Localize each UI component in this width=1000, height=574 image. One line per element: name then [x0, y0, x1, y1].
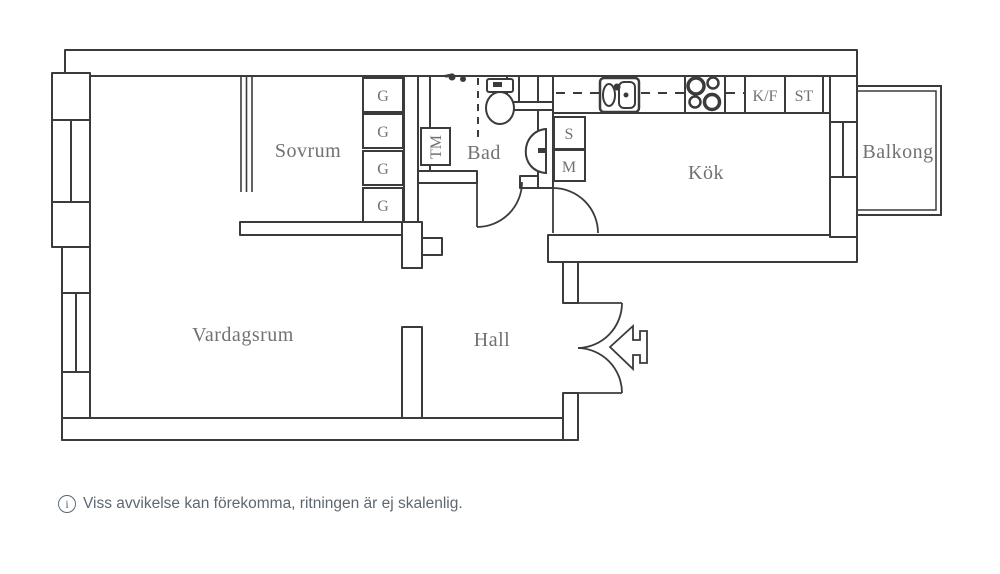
toilet-icon	[486, 79, 514, 124]
wall-hall-right-upper	[563, 262, 578, 303]
kitchen-sink-icon	[600, 78, 639, 112]
fridge-freezer-box: K/F	[745, 76, 785, 113]
wall-hall-right-lower	[563, 393, 578, 440]
cabinet-m-box: M	[554, 150, 585, 181]
wall-pier-nub	[422, 238, 442, 255]
wardrobe-box-2: G	[363, 114, 403, 148]
room-label-balkong: Balkong	[862, 141, 933, 163]
footer-disclaimer: i Viss avvikelse kan förekomma, ritninge…	[58, 495, 463, 513]
room-label-sovrum: Sovrum	[275, 140, 341, 162]
wall-pier-vertical	[402, 222, 422, 268]
info-icon: i	[58, 495, 76, 513]
room-label-vardagsrum: Vardagsrum	[192, 324, 294, 346]
wall-closet-bathroom	[404, 76, 418, 222]
stove-icon	[685, 76, 725, 113]
wall-bottom	[62, 418, 578, 440]
floor-plan-page: TM K/F ST S	[0, 0, 1000, 574]
door-kitchen	[553, 188, 598, 233]
fridge-freezer-label: K/F	[753, 88, 778, 105]
sliding-door-bedroom	[241, 76, 252, 192]
wall-top	[65, 50, 857, 76]
cabinet-s-box: S	[554, 117, 585, 149]
wardrobes: G G G G	[363, 78, 403, 222]
door-bathroom	[477, 182, 522, 227]
floor-plan-drawing: TM K/F ST S	[0, 0, 1000, 574]
wall-kitchen-bottom	[548, 235, 857, 262]
wall-hall-left	[402, 327, 422, 418]
room-label-bad: Bad	[467, 142, 501, 164]
wardrobe-box-1: G	[363, 78, 403, 112]
bathroom-sink-icon	[526, 129, 547, 173]
wardrobe-label: G	[377, 124, 389, 141]
washing-machine-label: TM	[428, 135, 445, 159]
cleaning-closet-box: ST	[785, 76, 823, 113]
wardrobe-label: G	[377, 88, 389, 105]
wardrobe-box-3: G	[363, 151, 403, 185]
cleaning-closet-label: ST	[795, 88, 814, 105]
wardrobe-label: G	[377, 161, 389, 178]
walls	[52, 50, 857, 440]
entrance-arrow-icon	[610, 326, 647, 369]
wall-bedroom-bottom	[240, 222, 403, 235]
wardrobe-box-4: G	[363, 188, 403, 222]
window-balcony-door	[830, 122, 857, 177]
wardrobe-label: G	[377, 198, 389, 215]
cabinet-s-label: S	[565, 126, 574, 143]
disclaimer-text: Viss avvikelse kan förekomma, ritningen …	[83, 495, 463, 513]
room-label-kok: Kök	[688, 162, 724, 184]
wall-bathroom-bottom-left	[418, 171, 477, 183]
window-bedroom	[52, 120, 90, 202]
cabinet-m-label: M	[562, 159, 576, 176]
window-livingroom	[62, 293, 90, 372]
washing-machine-box: TM	[421, 128, 450, 165]
room-label-hall: Hall	[474, 329, 510, 351]
